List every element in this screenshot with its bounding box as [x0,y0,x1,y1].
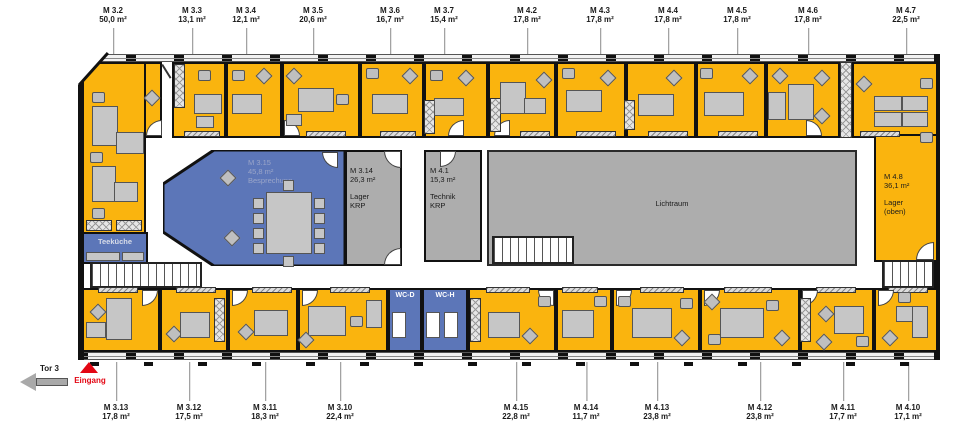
lintel [640,287,684,293]
exterior-wall-top [78,54,940,62]
desk [116,132,144,154]
leader-line [265,362,266,401]
leader-line [760,362,761,401]
stool [232,70,245,81]
stool [898,292,911,303]
wc-stall [426,312,440,338]
zone-label-technik: M 4.115,3 m² [430,166,455,184]
exterior-wall-bottom [78,352,940,360]
lintel [860,131,900,137]
stool [562,68,575,79]
desk [254,310,288,336]
desk [912,306,928,338]
lintel [486,287,530,293]
shaft-column [800,298,811,342]
desk [434,98,464,116]
stool [920,132,933,143]
shaft-column [840,62,852,138]
leader-line [189,362,190,401]
lintel [330,287,370,293]
door-leaf [161,64,171,79]
desk [194,94,222,114]
room-label: M 3.1118,3 m² [251,403,279,421]
stairs-icon [90,262,202,288]
shaft-column [174,64,185,108]
zone-label-lichtraum: Lichtraum [487,199,857,208]
chair [283,180,294,191]
desk [232,94,262,114]
desk [286,114,302,126]
desk [180,312,210,338]
stool [700,68,713,79]
desk [500,82,526,114]
zone-label-lager: M 3.1426,3 m² [350,166,375,184]
stool [92,208,105,219]
stool [708,334,721,345]
leader-line [657,362,658,401]
leader-line [908,362,909,401]
shaft-column [624,100,635,130]
room-label: M 4.1522,8 m² [502,403,530,421]
sofa [704,92,744,116]
zone-label-wc-d: WC-D [388,292,422,299]
conference-table [266,192,312,254]
stool [336,94,349,105]
desk [638,94,674,116]
room-label: M 4.1411,7 m² [572,403,599,421]
room-label: M 4.1223,8 m² [746,403,774,421]
chair [283,256,294,267]
room-label: M 3.1217,5 m² [175,403,203,421]
desk [196,116,214,128]
room-label: M 4.1323,8 m² [643,403,671,421]
chair [314,198,325,209]
desk [768,92,786,120]
lintel [718,131,758,137]
tor-arrow-body [36,378,68,386]
zone-label-wc-h: WC-H [422,292,468,299]
room-label: M 4.217,8 m² [513,6,541,24]
room-label: M 3.715,4 m² [430,6,458,24]
lintel [576,131,616,137]
desk [720,308,764,338]
tor-arrow-icon [20,373,36,391]
kitchen-counter [122,252,144,261]
leader-line [586,362,587,401]
desk [86,322,106,338]
desk [566,90,602,112]
chair [314,243,325,254]
lintel [816,287,856,293]
room-label: M 4.417,8 m² [654,6,682,24]
shaft-column [86,220,112,231]
sofa [874,96,902,111]
zone-label-technik-name: TechnikKRP [430,192,455,210]
floor-plan: M 3.250,0 m² M 3.313,1 m² M 3.412,1 m² M… [0,0,960,434]
chair [253,213,264,224]
zone-label-lager-name: LagerKRP [350,192,369,210]
stool [366,68,379,79]
sofa [902,112,928,127]
lintel [520,131,550,137]
room-label: M 3.250,0 m² [99,6,127,24]
zone-label-lager-oben-name: Lager(oben) [884,198,906,216]
desk [562,310,594,338]
chair [253,198,264,209]
desk [106,298,132,340]
desk [632,308,672,338]
lintel [380,131,416,137]
room-label: M 3.1022,4 m² [326,403,354,421]
lintel [184,131,220,137]
stool [350,316,363,327]
stool [766,300,779,311]
desk [366,300,382,328]
desk [788,84,814,120]
desk [92,106,118,146]
room-label: M 4.1017,1 m² [894,403,922,421]
desk [488,312,520,338]
room-label: M 3.520,6 m² [299,6,327,24]
lintel [562,287,598,293]
desk [308,306,346,336]
leader-line [843,362,844,401]
leader-line [516,362,517,401]
chair [253,243,264,254]
room-label: M 4.1117,7 m² [829,403,857,421]
stool [430,70,443,81]
zone-label-lager-oben: M 4.836,1 m² [884,172,909,190]
lintel [648,131,688,137]
stool [198,70,211,81]
room-label: M 3.1317,8 m² [102,403,130,421]
stool [90,152,103,163]
desk [524,98,546,114]
chair [314,228,325,239]
facade-ticks [90,362,930,366]
eingang-label: Eingang [71,376,109,385]
stairs-icon [492,236,574,264]
stool [920,78,933,89]
sofa [92,166,116,202]
room-label: M 3.616,7 m² [376,6,404,24]
leader-line [116,362,117,401]
sofa [874,112,902,127]
leader-line [340,362,341,401]
shaft-column [214,298,225,342]
room-label: M 4.517,8 m² [723,6,751,24]
lintel [724,287,772,293]
stool [618,296,631,307]
shaft-column [470,298,481,342]
wc-stall [392,312,406,338]
lintel [252,287,292,293]
chair [314,213,325,224]
kitchen-counter [86,252,120,261]
desk [372,94,408,114]
eingang-arrow-icon [80,362,98,373]
room-label: M 4.722,5 m² [892,6,920,24]
lintel [98,287,138,293]
desk [834,306,864,334]
lintel [306,131,346,137]
sofa [902,96,928,111]
stool [92,92,105,103]
room-label: M 4.617,8 m² [794,6,822,24]
room-label: M 3.412,1 m² [232,6,260,24]
sofa [114,182,138,202]
zone-label-teekueche: Teeküche [82,237,148,246]
chair [253,228,264,239]
stool [538,296,551,307]
tor-label: Tor 3 [40,364,59,373]
room-label: M 3.313,1 m² [178,6,206,24]
wc-stall [444,312,458,338]
stool [856,336,869,347]
stool [680,298,693,309]
lintel [176,287,216,293]
room-label: M 4.317,8 m² [586,6,614,24]
shaft-column [116,220,142,231]
desk [298,88,334,112]
stool [594,296,607,307]
stairs-icon [882,260,934,288]
